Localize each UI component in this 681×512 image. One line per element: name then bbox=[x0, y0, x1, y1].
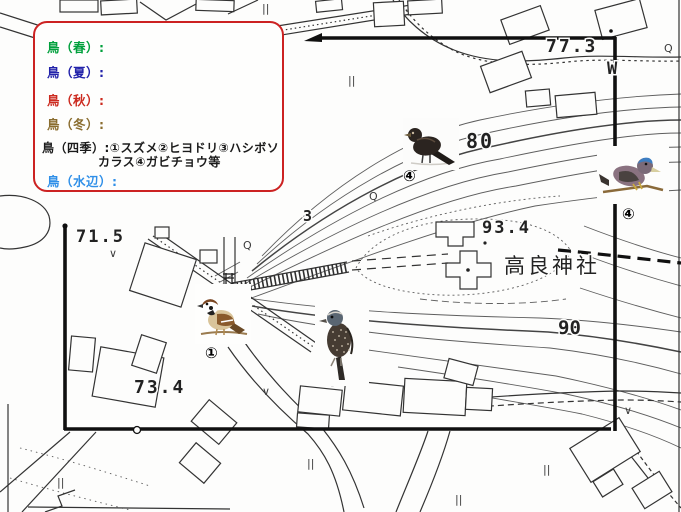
veg-check-symbol: ∨ bbox=[109, 247, 117, 260]
scanned-bird-map: Q Q Q Q || || || || || || ∨ ∨ ∨ 77.3 W 8… bbox=[0, 0, 681, 512]
spot-height-93-4: 93.4 bbox=[482, 218, 531, 238]
legend-item-waterside: 鳥（水辺）: bbox=[47, 171, 118, 190]
legend-item-winter: 鳥（冬）: bbox=[47, 114, 105, 133]
shrine-building bbox=[436, 222, 474, 246]
eye bbox=[331, 316, 334, 319]
spot-height-77-3: 77.3 bbox=[546, 36, 597, 57]
field-tick-symbol: || bbox=[543, 463, 550, 476]
spot-height-73-4: 73.4 bbox=[134, 377, 185, 398]
eye bbox=[206, 303, 209, 306]
bird-photo-blue-headed-bird bbox=[597, 146, 669, 204]
contour-label-80: 80 bbox=[466, 129, 494, 153]
shrine-name-label: 高良神社 bbox=[504, 254, 600, 278]
marker-sparrow: ① bbox=[205, 344, 218, 362]
cheek-spot bbox=[209, 306, 213, 310]
legend-item-all-seasons-line2: カラス④ガビチョウ等 bbox=[98, 153, 221, 170]
veg-q-symbol: Q bbox=[664, 42, 673, 55]
field-tick-symbol: || bbox=[455, 493, 462, 506]
bird-photo-speckled-bird bbox=[315, 300, 369, 386]
legend-item-autumn: 鳥（秋）: bbox=[47, 90, 105, 109]
boundary-west-flag bbox=[304, 33, 322, 42]
veg-q-symbol: Q bbox=[243, 239, 252, 252]
marker-blue-bird: ④ bbox=[622, 205, 635, 223]
field-tick-symbol: || bbox=[348, 74, 355, 87]
bird-markers: ④ ④ ① ④ bbox=[205, 167, 635, 390]
bird-photo-sparrow bbox=[195, 284, 251, 344]
bird-photo-dark-bird bbox=[403, 118, 459, 170]
bird-season-legend: 鳥（春）: 鳥（夏）: 鳥（秋）: 鳥（冬）: 鳥（四季）:①スズメ②ヒヨドリ③… bbox=[33, 21, 284, 192]
veg-check-symbol: ∨ bbox=[262, 385, 270, 398]
spot-height-71-5: 71.5 bbox=[76, 227, 125, 247]
partial-label-3: 3 bbox=[303, 207, 312, 225]
w-mark: W bbox=[607, 59, 618, 79]
eye bbox=[412, 132, 414, 134]
veg-q-symbol: Q bbox=[369, 190, 378, 203]
veg-check-symbol: ∨ bbox=[624, 404, 632, 417]
field-tick-symbol: || bbox=[262, 2, 269, 15]
field-tick-symbol: || bbox=[307, 457, 314, 470]
contour-label-90: 90 bbox=[558, 317, 581, 339]
field-tick-symbol: || bbox=[57, 476, 64, 489]
legend-item-summer: 鳥（夏）: bbox=[47, 62, 105, 81]
legend-item-spring: 鳥（春）: bbox=[47, 37, 105, 56]
eye bbox=[645, 163, 648, 166]
